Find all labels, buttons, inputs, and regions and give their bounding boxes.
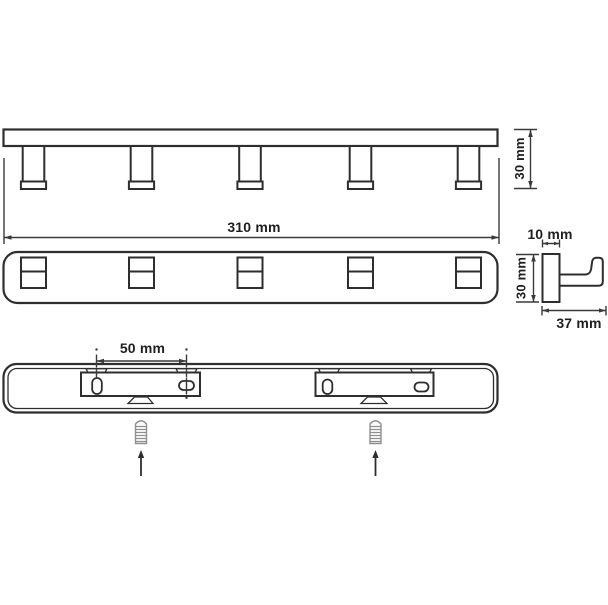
- hook-front-4: [348, 258, 373, 289]
- hook-side-5: [456, 146, 481, 189]
- hook-front-1: [21, 258, 46, 289]
- rail-side-view: [4, 130, 498, 190]
- dim-rail-height: 30 mm: [512, 130, 537, 189]
- hook-side-4: [348, 146, 373, 189]
- hook-rail-technical-drawing: 310 mm 30 mm: [0, 0, 608, 605]
- screw-left: [136, 421, 147, 444]
- dim-hook-width: 10 mm: [527, 226, 572, 248]
- rail-front-view: [4, 252, 498, 303]
- hook-side-1: [21, 146, 46, 189]
- rail-back-view: [4, 364, 498, 413]
- hook-side-2: [129, 146, 154, 189]
- arrow-up-left: [138, 450, 144, 476]
- arrow-up-right: [372, 450, 378, 476]
- dim-hook-height: 30 mm: [513, 255, 539, 303]
- hook-profile-view: [543, 254, 603, 302]
- dim-hook-depth: 37 mm: [542, 306, 606, 331]
- hook-side-3: [237, 146, 262, 189]
- hook-backplate: [543, 254, 560, 302]
- slot-vertical-right: [323, 380, 333, 395]
- hook-front-2: [129, 258, 154, 289]
- slot-vertical-left: [92, 378, 102, 394]
- hook-width-label: 10 mm: [527, 226, 572, 242]
- rail-length-label: 310 mm: [227, 219, 280, 235]
- rail-height-label: 30 mm: [512, 137, 527, 179]
- hook-depth-label: 37 mm: [556, 315, 601, 331]
- hook-front-3: [238, 258, 263, 289]
- slot-horizontal-right: [415, 383, 429, 392]
- hook-height-label: 30 mm: [513, 257, 528, 299]
- rail-bar: [4, 130, 498, 147]
- drawing-svg: 310 mm 30 mm: [0, 0, 608, 605]
- hook-arm: [560, 258, 603, 286]
- hook-front-5: [456, 258, 481, 289]
- screw-right: [370, 421, 381, 444]
- slot-spacing-label: 50 mm: [120, 340, 165, 356]
